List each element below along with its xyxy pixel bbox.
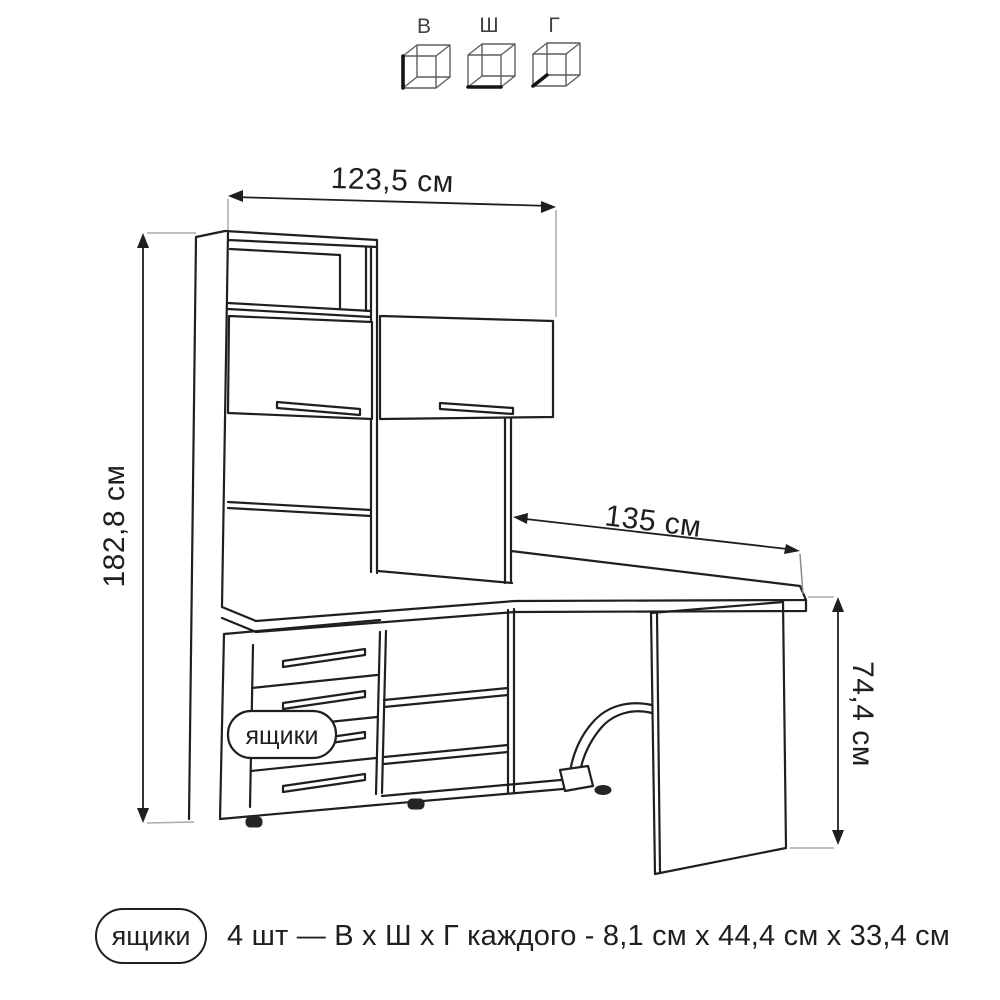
legend-letter-height: В: [417, 15, 431, 38]
curved-support-inner: [579, 711, 652, 777]
support-foot-block: [560, 766, 593, 791]
desk-side-panel: [651, 601, 786, 874]
arrowhead: [832, 597, 844, 612]
dimension-desk-height: 74,4 см: [790, 597, 879, 848]
callout-label: ящики: [246, 722, 319, 750]
arrowhead: [137, 808, 149, 823]
arrowhead: [137, 233, 149, 248]
cube-depth-icon: [533, 43, 580, 86]
drawer-handle-4: [283, 774, 365, 792]
drawers-spec-text: 4 шт — В х Ш х Г каждого - 8,1 см х 44,4…: [227, 920, 950, 953]
foot: [246, 817, 262, 827]
open-shelf-section: [376, 609, 652, 805]
arrowhead: [784, 544, 800, 554]
dimension-total-height: 182,8 см: [98, 233, 196, 823]
foot: [595, 786, 611, 795]
depth-edge-highlight: [533, 75, 547, 86]
drawer-handle-1: [283, 649, 365, 667]
drawers-badge: ящики: [95, 908, 207, 964]
dimension-legend: В Ш Г: [403, 14, 580, 88]
technical-drawing-page: В Ш Г: [0, 0, 1000, 1000]
footer-note-row: ящики 4 шт — В х Ш х Г каждого - 8,1 см …: [95, 908, 950, 964]
right-door: [380, 316, 553, 419]
furniture-technical-drawing: В Ш Г: [0, 0, 1000, 1000]
arrowhead: [513, 513, 528, 524]
dimension-label-height: 182,8 см: [98, 464, 131, 587]
legend-letter-width: Ш: [479, 14, 498, 37]
drawer-handle-2: [283, 691, 365, 709]
arrowhead: [541, 201, 556, 213]
dimension-desk-depth: 135 см: [513, 499, 803, 594]
dimension-hutch-width: 123,5 см: [228, 162, 556, 317]
arrowhead: [832, 830, 844, 845]
foot: [408, 799, 424, 809]
dimension-label-desk-height: 74,4 см: [846, 661, 879, 767]
arrowhead: [228, 190, 243, 202]
dimension-label-depth: 135 см: [603, 499, 703, 544]
legend-letter-depth: Г: [548, 14, 559, 37]
drawers-callout: ящики: [228, 711, 336, 758]
cube-width-icon: [468, 44, 515, 87]
cube-height-icon: [403, 45, 450, 88]
dimension-label-width: 123,5 см: [330, 162, 454, 199]
